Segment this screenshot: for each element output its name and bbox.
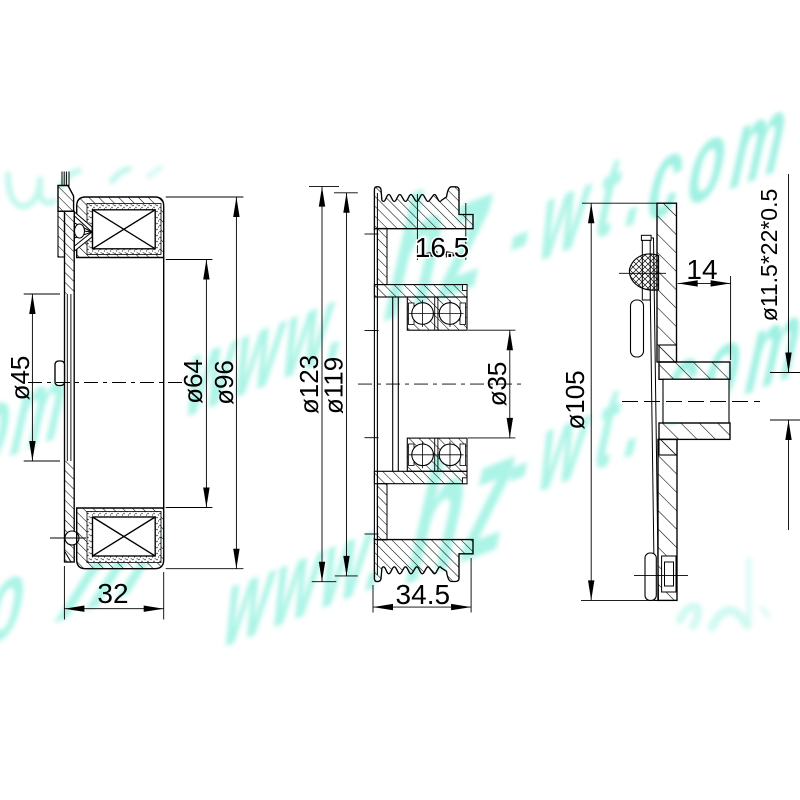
svg-text:32: 32 [97, 578, 128, 609]
svg-text:ø64: ø64 [178, 359, 208, 404]
svg-text:14: 14 [686, 254, 717, 285]
svg-text:ø11.5*22*0.5: ø11.5*22*0.5 [756, 189, 782, 322]
svg-text:16.5: 16.5 [415, 232, 470, 263]
svg-text:ø105: ø105 [560, 370, 590, 429]
svg-text:ø35: ø35 [482, 362, 512, 407]
svg-text:ø45: ø45 [5, 356, 35, 401]
svg-text:34.5: 34.5 [396, 579, 451, 610]
svg-text:ø119: ø119 [318, 357, 348, 414]
svg-text:ø96: ø96 [209, 360, 239, 405]
